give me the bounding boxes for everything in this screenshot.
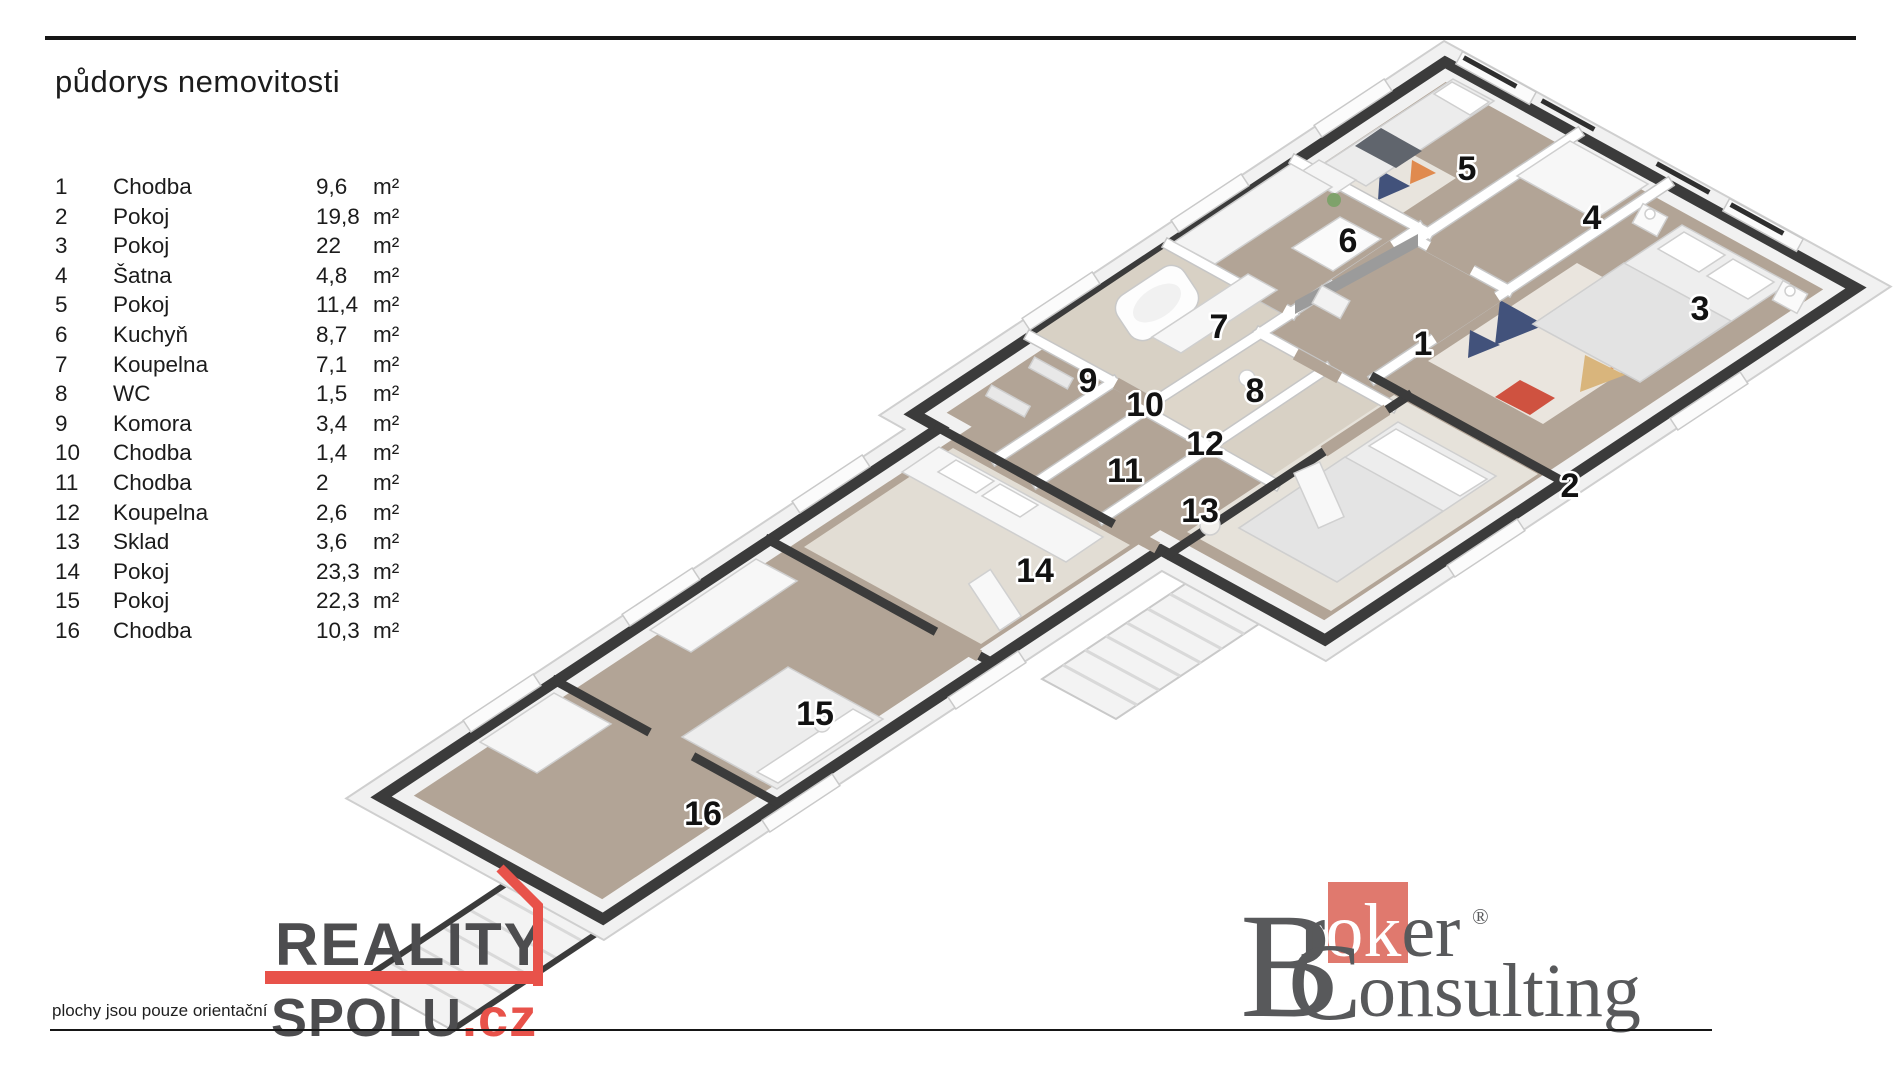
- room-label-5: 5: [1458, 150, 1477, 188]
- room-label-6: 6: [1339, 222, 1358, 260]
- floorplan-sheet: půdorys nemovitosti 1Chodba9,6m² 2Pokoj1…: [0, 0, 1900, 1069]
- room-label-14: 14: [1016, 552, 1054, 590]
- reality-spolu-spolu: SPOLU: [271, 988, 462, 1048]
- broker-initial-c: C: [1288, 927, 1361, 1037]
- reality-spolu-tld: .cz: [462, 988, 537, 1048]
- room-label-16: 16: [684, 795, 722, 833]
- room-label-3: 3: [1691, 290, 1710, 328]
- area-disclaimer: plochy jsou pouze orientační: [52, 1001, 267, 1021]
- room-label-8: 8: [1246, 372, 1265, 410]
- room-label-7: 7: [1210, 308, 1229, 346]
- room-label-2: 2: [1561, 467, 1580, 505]
- reality-spolu-roof-icon: [480, 858, 570, 998]
- room-label-11: 11: [1107, 452, 1143, 490]
- broker-word2: onsulting: [1358, 953, 1641, 1029]
- room-label-10: 10: [1126, 386, 1164, 424]
- room-label-9: 9: [1079, 362, 1098, 400]
- room-label-1: 1: [1414, 325, 1433, 363]
- broker-consulting-logo: B roker ® C onsulting: [1240, 870, 1720, 1030]
- room-label-12: 12: [1186, 425, 1224, 463]
- reality-spolu-logo-line2: SPOLU.cz: [271, 991, 537, 1045]
- bottom-divider: [50, 1029, 1712, 1031]
- room-label-4: 4: [1583, 199, 1602, 237]
- registered-mark: ®: [1472, 906, 1489, 928]
- room-label-15: 15: [796, 695, 834, 733]
- room-label-13: 13: [1181, 492, 1219, 530]
